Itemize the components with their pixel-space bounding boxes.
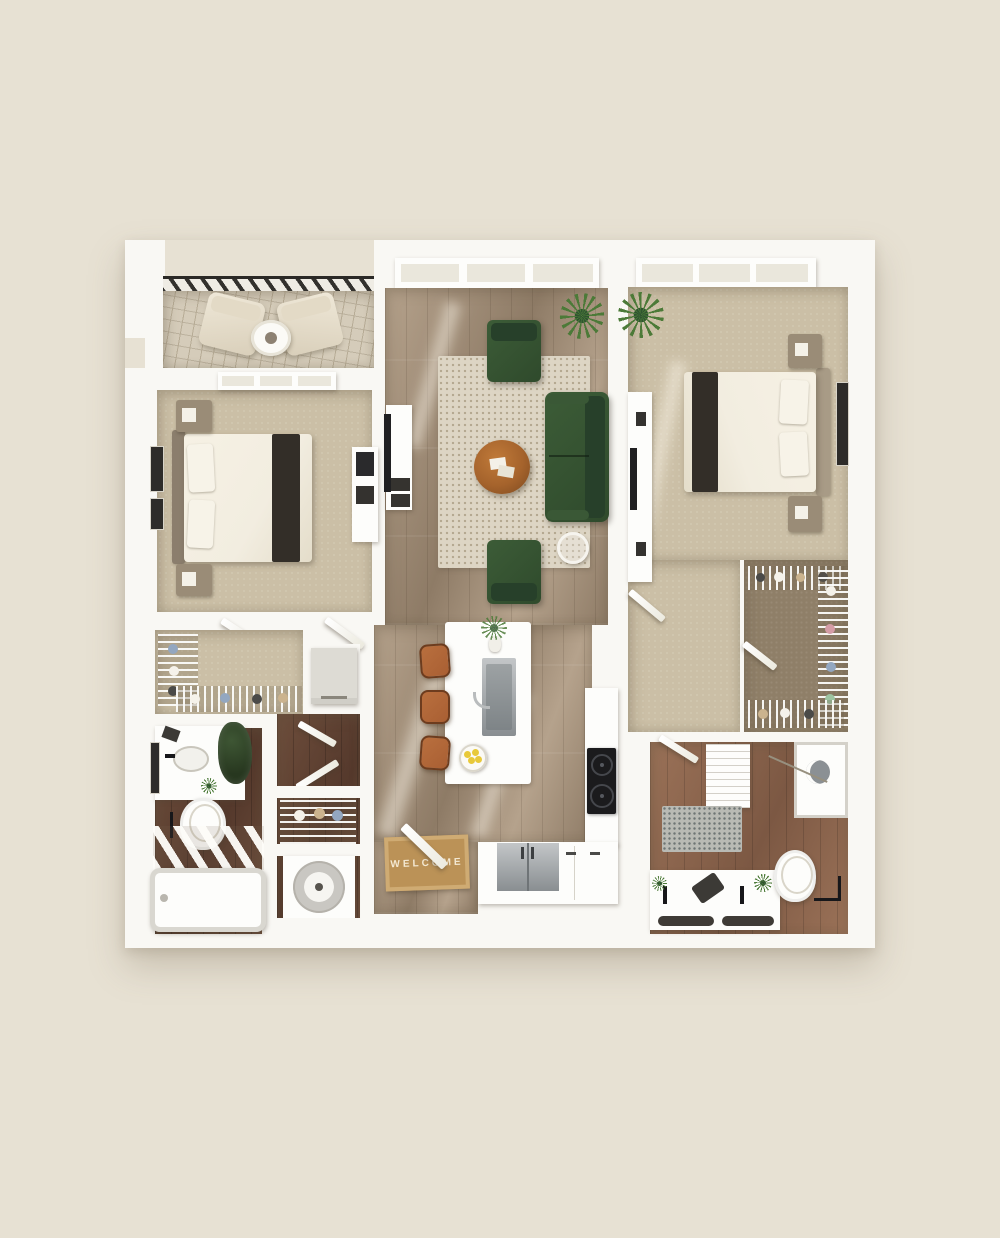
nightstand-decor — [795, 343, 808, 356]
toilet-plumbing — [838, 876, 841, 901]
refrigerator — [497, 843, 559, 891]
bathroom2-linen-shelf — [706, 744, 750, 808]
bathroom2-double-vanity — [650, 870, 780, 930]
bathroom1-bathtub — [150, 868, 266, 932]
window-pane — [260, 376, 292, 386]
bed-pillow — [779, 379, 809, 424]
linen-wire-shelf — [280, 798, 356, 844]
vanity-plant — [201, 778, 217, 794]
bed-runner — [692, 372, 718, 492]
bar-stool — [419, 735, 451, 771]
vanity-tray — [161, 726, 180, 743]
cabinet-handle — [590, 852, 600, 855]
bedroom2-wall-art — [836, 382, 849, 466]
sofa — [545, 392, 609, 522]
shower-screen-slats — [153, 826, 264, 870]
fridge-door-split — [527, 843, 529, 891]
armchair-back — [491, 323, 537, 341]
bathroom1-leafy-plant — [218, 722, 252, 784]
floor-plan-canvas: WELCOME — [0, 0, 1000, 1238]
kitchen-island — [445, 622, 531, 784]
sofa-back-cushions — [585, 396, 605, 518]
bar-stool — [420, 690, 450, 724]
vanity-plant — [652, 876, 667, 891]
console-drawer — [391, 494, 410, 507]
sofa-seam — [549, 455, 589, 457]
dresser-tv — [356, 452, 374, 476]
lemon-bowl — [459, 744, 487, 772]
bedroom2-dresser — [628, 392, 652, 582]
left-edge-notch — [125, 338, 145, 368]
vanity-faucet — [165, 754, 175, 758]
bedroom1-wall-art-2 — [150, 498, 164, 530]
sofa-arm — [547, 394, 589, 404]
toilet-plumbing — [814, 898, 840, 901]
bedroom2-window — [636, 258, 816, 288]
welcome-mat-text: WELCOME — [390, 856, 464, 870]
drum-center — [315, 883, 323, 891]
window-pane — [401, 264, 459, 282]
living-window — [395, 258, 599, 288]
dresser-drawer — [356, 486, 374, 504]
wire-side-table — [557, 532, 589, 564]
bathroom2-rug — [662, 806, 742, 852]
fridge-handle — [531, 847, 534, 859]
vanity-sink — [173, 746, 209, 772]
bedroom1-wall-art — [150, 446, 164, 492]
fridge-handle — [521, 847, 524, 859]
bed-runner — [272, 434, 300, 562]
window-pane — [298, 376, 331, 386]
tub-faucet — [160, 894, 168, 902]
balcony-open-top — [165, 240, 374, 276]
island-faucet — [473, 692, 490, 709]
bedroom2-headboard — [816, 368, 830, 496]
coffee-table — [474, 440, 530, 494]
closet2-shelf-bottom — [748, 700, 844, 728]
magazine — [497, 465, 515, 479]
armchair-top — [487, 320, 541, 382]
water-heater-unit — [311, 648, 357, 704]
nightstand-decor — [182, 408, 196, 422]
vanity-tray — [691, 872, 725, 904]
window-pane — [756, 264, 808, 282]
nightstand-decor — [795, 506, 808, 519]
toilet-seat — [781, 856, 813, 894]
sofa-arm — [547, 510, 589, 520]
bed-pillow — [779, 431, 809, 476]
window-pane — [222, 376, 254, 386]
armchair-back — [491, 583, 537, 601]
bedroom1-window — [218, 372, 336, 390]
dresser-decor — [636, 412, 646, 426]
patio-table-knob — [265, 332, 277, 344]
window-pane — [642, 264, 693, 282]
television — [384, 414, 391, 492]
vanity-bath-mat — [658, 916, 714, 926]
burner — [590, 784, 614, 808]
vanity-faucet — [740, 886, 744, 904]
kitchen-counter-right — [585, 688, 618, 846]
bedroom2-nightstand-top — [788, 334, 822, 368]
bedroom1-bed — [184, 434, 312, 562]
cooktop — [587, 748, 616, 814]
burner — [591, 754, 613, 776]
nightstand-decor — [182, 572, 196, 586]
console-drawer — [391, 478, 410, 491]
bedroom1-nightstand-bottom — [176, 564, 212, 596]
television — [630, 448, 637, 510]
bathroom2-toilet — [774, 850, 816, 902]
patio-side-table — [251, 320, 291, 356]
bedroom2-bed — [684, 372, 816, 492]
living-tv-console — [386, 405, 412, 510]
bedroom2-nightstand-bottom — [788, 496, 822, 532]
bathroom1-mirror — [150, 742, 160, 794]
washer-dryer-drum — [293, 861, 345, 913]
kitchen-counter-bottom — [478, 842, 618, 904]
armchair-bottom — [487, 540, 541, 604]
bar-stool — [419, 643, 451, 679]
closet1-shelf-bottom — [176, 686, 302, 712]
vanity-bath-mat — [722, 916, 774, 926]
bed-pillow — [187, 443, 215, 492]
window-pane — [699, 264, 750, 282]
linen-niche-wall — [277, 844, 360, 856]
dresser-decor — [636, 542, 646, 556]
bedroom1-nightstand-top — [176, 400, 212, 432]
window-pane — [467, 264, 525, 282]
laundry-bottom-wall — [277, 918, 360, 934]
window-pane — [533, 264, 593, 282]
bedroom1-dresser — [352, 447, 378, 542]
bed-pillow — [187, 499, 215, 548]
bedroom2-dressing-area-floor — [628, 560, 740, 732]
appliance-handle — [321, 696, 347, 699]
vanity-plant — [754, 874, 772, 892]
linen-niche-wall — [277, 786, 360, 798]
vase-flowers — [481, 616, 507, 640]
washer-dryer-pedestal — [283, 856, 355, 918]
cabinet-handle — [566, 852, 576, 855]
